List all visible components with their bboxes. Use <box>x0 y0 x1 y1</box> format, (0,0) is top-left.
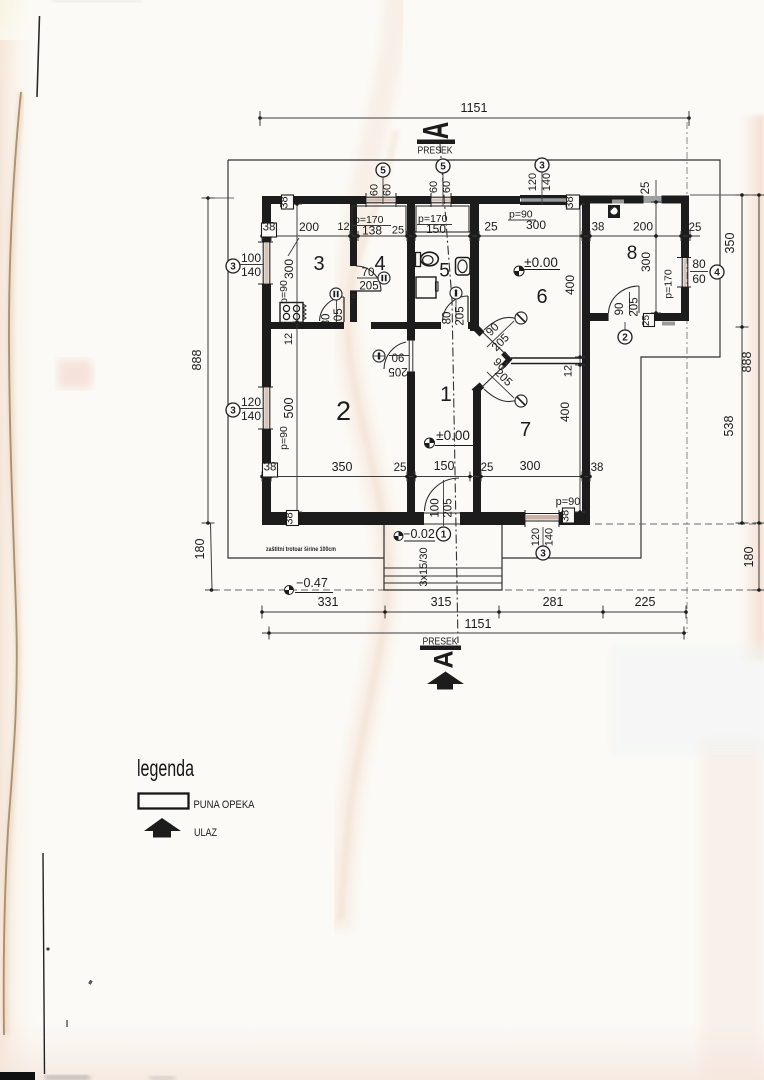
svg-text:80: 80 <box>692 257 706 271</box>
svg-text:5: 5 <box>380 165 386 176</box>
svg-text:p=90: p=90 <box>556 496 581 508</box>
svg-text:888: 888 <box>740 352 754 373</box>
svg-text:140: 140 <box>241 265 261 279</box>
svg-text:90: 90 <box>614 303 626 316</box>
svg-text:100: 100 <box>241 251 261 265</box>
svg-text:p=90: p=90 <box>278 426 290 450</box>
svg-text:90: 90 <box>392 351 405 363</box>
svg-text:2: 2 <box>622 332 628 343</box>
svg-text:150: 150 <box>426 222 446 236</box>
svg-text:3: 3 <box>540 548 546 559</box>
svg-text:8: 8 <box>627 243 638 264</box>
svg-text:60: 60 <box>382 184 394 196</box>
svg-text:25: 25 <box>641 315 652 327</box>
svg-text:25: 25 <box>640 182 652 195</box>
svg-text:205: 205 <box>455 306 467 325</box>
svg-text:331: 331 <box>318 595 339 609</box>
svg-text:38: 38 <box>592 222 605 234</box>
svg-text:300: 300 <box>520 459 541 473</box>
svg-text:38: 38 <box>284 512 296 524</box>
svg-text:200: 200 <box>299 220 319 234</box>
svg-text:12: 12 <box>283 333 295 345</box>
svg-text:3: 3 <box>313 253 324 275</box>
svg-text:25: 25 <box>481 462 494 474</box>
svg-text:60: 60 <box>369 184 381 196</box>
svg-text:80: 80 <box>321 314 333 327</box>
svg-text:zaštitni trotoar širine 100cm: zaštitni trotoar širine 100cm <box>266 546 336 553</box>
svg-text:5: 5 <box>439 261 450 282</box>
svg-text:5: 5 <box>440 161 446 172</box>
svg-text:500: 500 <box>282 398 296 419</box>
svg-text:225: 225 <box>635 595 656 609</box>
svg-text:25: 25 <box>394 462 407 474</box>
svg-text:38: 38 <box>263 222 276 234</box>
svg-text:300: 300 <box>526 218 546 232</box>
svg-text:80: 80 <box>442 312 454 325</box>
svg-text:180: 180 <box>742 547 756 568</box>
svg-text:±0.00: ±0.00 <box>524 255 558 270</box>
svg-text:legenda: legenda <box>137 755 194 781</box>
svg-text:205: 205 <box>629 297 641 316</box>
svg-text:400: 400 <box>558 402 572 422</box>
svg-text:120: 120 <box>530 528 542 546</box>
svg-text:PUNA OPEKA: PUNA OPEKA <box>194 799 256 811</box>
svg-text:138: 138 <box>362 224 382 238</box>
svg-text:300: 300 <box>282 259 296 279</box>
svg-text:120: 120 <box>241 395 261 409</box>
svg-text:−0.02: −0.02 <box>403 527 435 541</box>
svg-text:−0.47: −0.47 <box>296 576 328 590</box>
svg-text:3: 3 <box>539 160 545 171</box>
svg-text:25: 25 <box>689 222 702 234</box>
svg-text:315: 315 <box>431 595 452 609</box>
svg-text:12: 12 <box>337 221 349 233</box>
svg-text:7: 7 <box>520 419 531 441</box>
svg-text:6: 6 <box>536 286 547 308</box>
svg-text:38: 38 <box>279 196 291 208</box>
svg-text:60: 60 <box>692 272 706 286</box>
svg-text:140: 140 <box>544 528 556 546</box>
svg-text:120: 120 <box>527 173 539 191</box>
svg-text:350: 350 <box>723 233 737 254</box>
svg-text:1151: 1151 <box>465 617 492 631</box>
svg-text:1: 1 <box>441 529 447 540</box>
svg-text:4: 4 <box>374 253 385 275</box>
svg-text:25: 25 <box>392 225 404 237</box>
svg-text:100: 100 <box>430 498 442 517</box>
svg-text:888: 888 <box>190 350 204 371</box>
svg-text:p=90: p=90 <box>278 280 290 304</box>
svg-text:±0.00: ±0.00 <box>436 428 470 443</box>
svg-text:350: 350 <box>332 460 353 474</box>
svg-text:25: 25 <box>484 220 498 234</box>
svg-text:38: 38 <box>591 462 604 474</box>
svg-text:300: 300 <box>639 252 653 272</box>
svg-text:38: 38 <box>264 462 277 474</box>
svg-text:38: 38 <box>560 510 572 522</box>
svg-text:400: 400 <box>563 275 577 295</box>
svg-text:150: 150 <box>434 459 455 473</box>
svg-text:3x15/30: 3x15/30 <box>418 547 430 586</box>
svg-text:2: 2 <box>336 396 351 426</box>
svg-text:140: 140 <box>241 409 261 423</box>
svg-text:p=170: p=170 <box>663 269 675 299</box>
svg-text:205: 205 <box>333 308 345 327</box>
svg-text:3: 3 <box>230 261 236 272</box>
svg-text:12: 12 <box>563 365 575 377</box>
svg-text:1: 1 <box>440 383 452 406</box>
svg-text:38: 38 <box>564 196 576 208</box>
svg-text:205: 205 <box>388 365 407 377</box>
svg-text:538: 538 <box>722 416 736 437</box>
svg-text:200: 200 <box>633 220 653 234</box>
svg-text:4: 4 <box>714 267 720 278</box>
svg-text:PRESEK: PRESEK <box>418 145 453 157</box>
svg-text:A: A <box>415 122 456 140</box>
svg-text:60: 60 <box>428 181 440 193</box>
svg-text:281: 281 <box>543 595 564 609</box>
svg-text:A: A <box>429 651 459 669</box>
svg-text:70: 70 <box>362 267 375 279</box>
svg-text:60: 60 <box>441 181 453 193</box>
svg-text:180: 180 <box>193 539 207 560</box>
svg-text:ULAZ: ULAZ <box>194 827 217 839</box>
svg-text:3: 3 <box>230 405 236 416</box>
svg-text:1151: 1151 <box>461 101 488 115</box>
svg-text:205: 205 <box>443 498 455 517</box>
svg-text:205: 205 <box>359 281 378 293</box>
svg-text:140: 140 <box>541 173 553 191</box>
